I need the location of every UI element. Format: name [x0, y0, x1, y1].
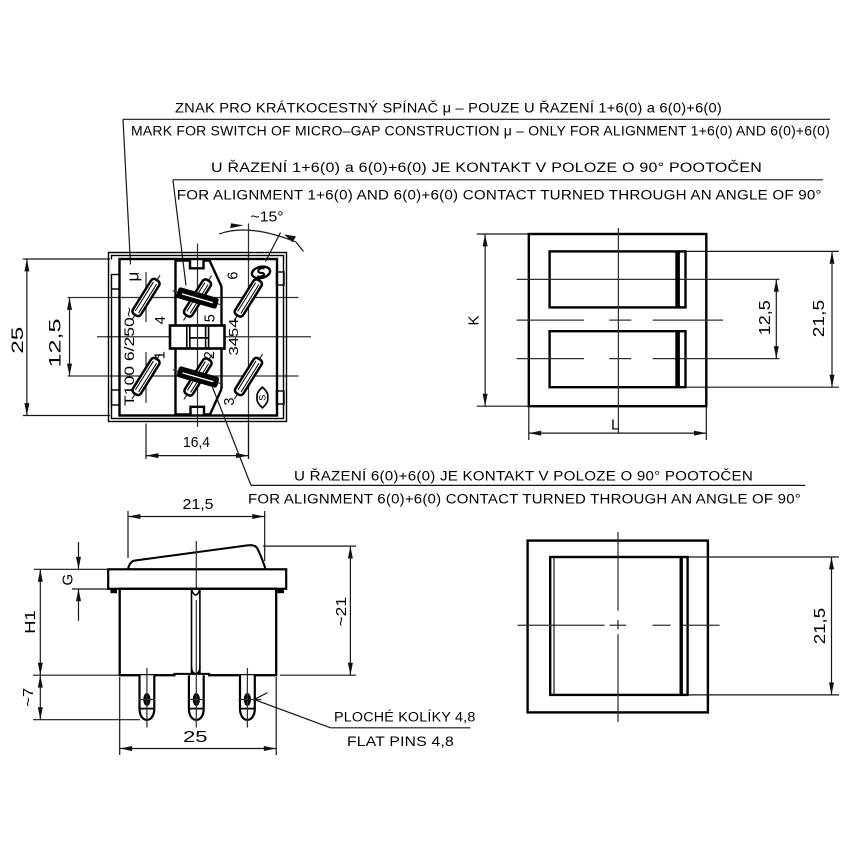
- svg-text:12,5: 12,5: [45, 319, 64, 368]
- svg-text:4: 4: [153, 316, 169, 324]
- svg-text:1: 1: [153, 351, 169, 359]
- svg-text:3454: 3454: [226, 319, 241, 356]
- svg-text:12,5: 12,5: [757, 300, 774, 335]
- svg-text:25: 25: [183, 729, 208, 746]
- svg-text:~15°: ~15°: [251, 210, 284, 226]
- svg-text:16,4: 16,4: [183, 434, 210, 451]
- svg-text:2: 2: [202, 351, 218, 359]
- svg-text:21,5: 21,5: [812, 608, 829, 645]
- svg-text:PLOCHÉ KOLÍKY 4,8: PLOCHÉ KOLÍKY 4,8: [334, 710, 476, 725]
- svg-text:~7: ~7: [20, 688, 37, 707]
- svg-text:S: S: [257, 395, 267, 401]
- svg-text:5: 5: [203, 314, 219, 322]
- svg-text:U ŘAZENÍ 6(0)+6(0) JE KONTAKT: U ŘAZENÍ 6(0)+6(0) JE KONTAKT V POLOZE O…: [294, 468, 753, 483]
- svg-text:L: L: [611, 417, 619, 434]
- svg-text:K: K: [466, 315, 483, 325]
- svg-text:T100 6/250~: T100 6/250~: [122, 307, 137, 406]
- svg-text:H1: H1: [22, 610, 39, 634]
- svg-text:μ: μ: [124, 272, 143, 282]
- svg-text:3: 3: [222, 398, 238, 406]
- svg-text:6: 6: [226, 272, 242, 280]
- svg-text:25: 25: [9, 327, 27, 354]
- svg-text:U ŘAZENÍ 1+6(0) a 6(0)+6(0) J: U ŘAZENÍ 1+6(0) a 6(0)+6(0) JE KONTAKT V…: [211, 160, 762, 175]
- svg-text:21,5: 21,5: [183, 496, 214, 513]
- svg-text:~21: ~21: [333, 597, 350, 627]
- svg-text:FLAT PINS 4,8: FLAT PINS 4,8: [347, 734, 454, 749]
- svg-text:MARK FOR SWITCH OF MICRO–GAP C: MARK FOR SWITCH OF MICRO–GAP CONSTRUCTIO…: [131, 124, 830, 139]
- svg-text:G: G: [60, 574, 77, 586]
- svg-text:FOR ALIGNMENT 6(0)+6(0) CONTAC: FOR ALIGNMENT 6(0)+6(0) CONTACT TURNED T…: [248, 491, 801, 506]
- svg-text:21,5: 21,5: [811, 300, 828, 338]
- svg-text:FOR ALIGNMENT 1+6(0) AND 6(0)+: FOR ALIGNMENT 1+6(0) AND 6(0)+6(0) CONTA…: [177, 188, 822, 203]
- svg-text:ZNAK PRO KRÁTKOCESTNÝ SPÍNAČ μ: ZNAK PRO KRÁTKOCESTNÝ SPÍNAČ μ – POUZE U…: [175, 101, 722, 116]
